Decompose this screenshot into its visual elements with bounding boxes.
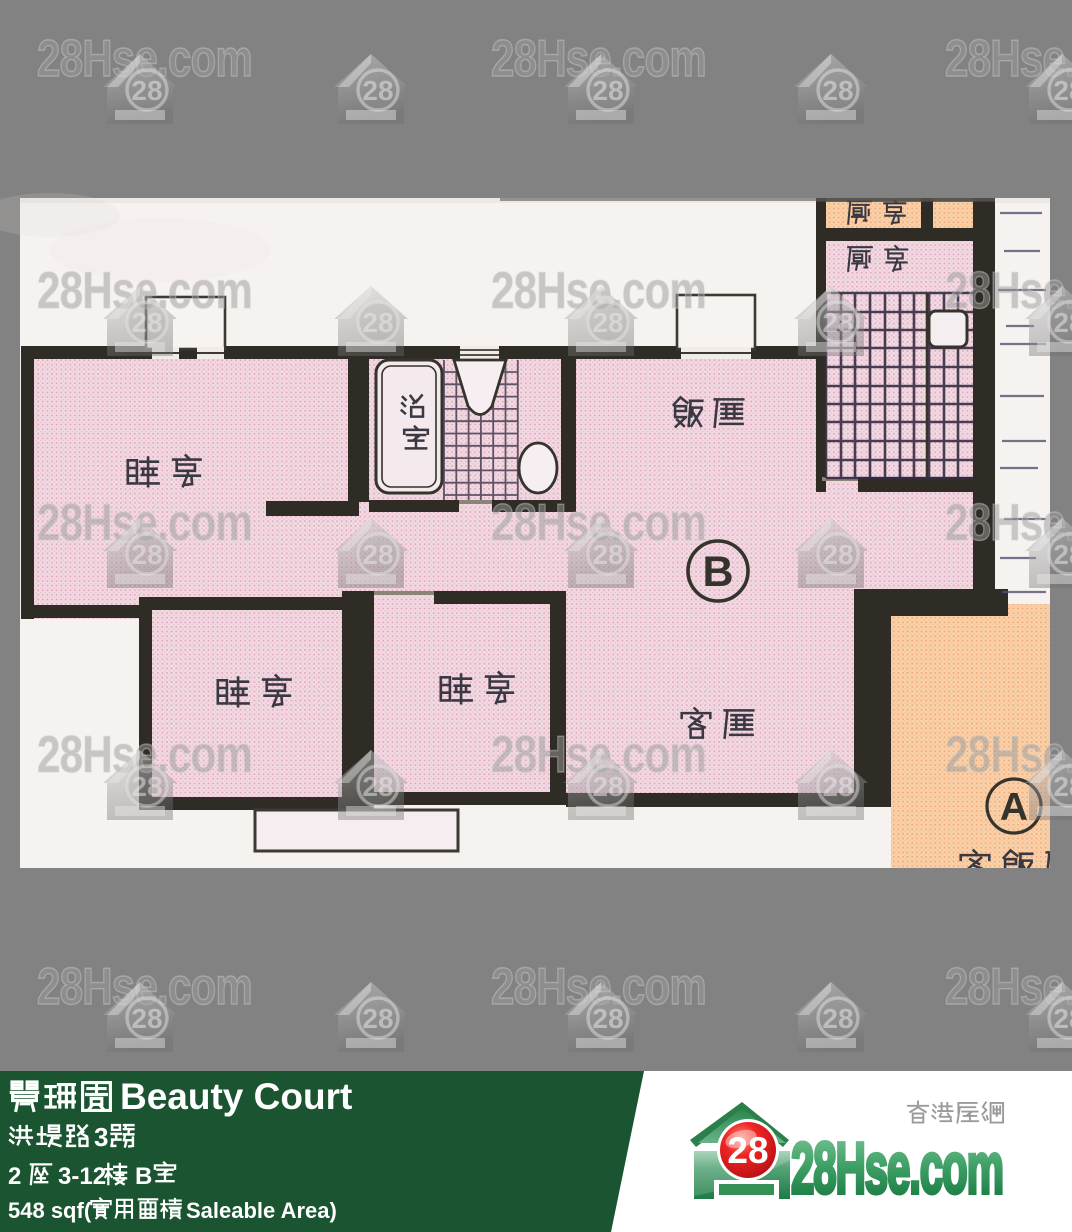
svg-text:B: B (702, 548, 733, 596)
svg-text:28: 28 (362, 307, 393, 338)
svg-text:28: 28 (592, 75, 623, 106)
svg-text:28: 28 (131, 539, 162, 570)
svg-text:28: 28 (1053, 307, 1072, 338)
svg-text:A: A (1000, 786, 1028, 829)
svg-text:3-12: 3-12 (58, 1163, 106, 1190)
svg-text:28: 28 (592, 771, 623, 802)
svg-text:28: 28 (362, 771, 393, 802)
svg-text:28: 28 (822, 771, 853, 802)
svg-text:28: 28 (131, 1003, 162, 1034)
svg-text:28: 28 (1053, 75, 1072, 106)
svg-text:28: 28 (131, 307, 162, 338)
svg-text:B: B (135, 1163, 152, 1190)
svg-text:28Hse.com: 28Hse.com (791, 1130, 1003, 1209)
svg-text:3: 3 (94, 1122, 108, 1152)
svg-text:Saleable Area): Saleable Area) (186, 1198, 337, 1223)
svg-text:2: 2 (8, 1163, 21, 1190)
svg-text:548 sqf(: 548 sqf( (8, 1198, 92, 1223)
svg-text:28: 28 (1053, 539, 1072, 570)
svg-text:28: 28 (727, 1130, 768, 1171)
svg-text:28: 28 (822, 75, 853, 106)
svg-text:Beauty Court: Beauty Court (120, 1076, 352, 1117)
svg-text:28: 28 (822, 307, 853, 338)
svg-text:28: 28 (1053, 771, 1072, 802)
svg-text:28: 28 (1053, 1003, 1072, 1034)
svg-text:28: 28 (592, 1003, 623, 1034)
svg-text:28: 28 (592, 539, 623, 570)
svg-text:28: 28 (592, 307, 623, 338)
svg-text:28: 28 (362, 539, 393, 570)
svg-text:28: 28 (362, 1003, 393, 1034)
svg-text:28: 28 (131, 771, 162, 802)
svg-text:28: 28 (822, 539, 853, 570)
svg-text:28: 28 (131, 75, 162, 106)
svg-text:28: 28 (362, 75, 393, 106)
svg-text:28: 28 (822, 1003, 853, 1034)
